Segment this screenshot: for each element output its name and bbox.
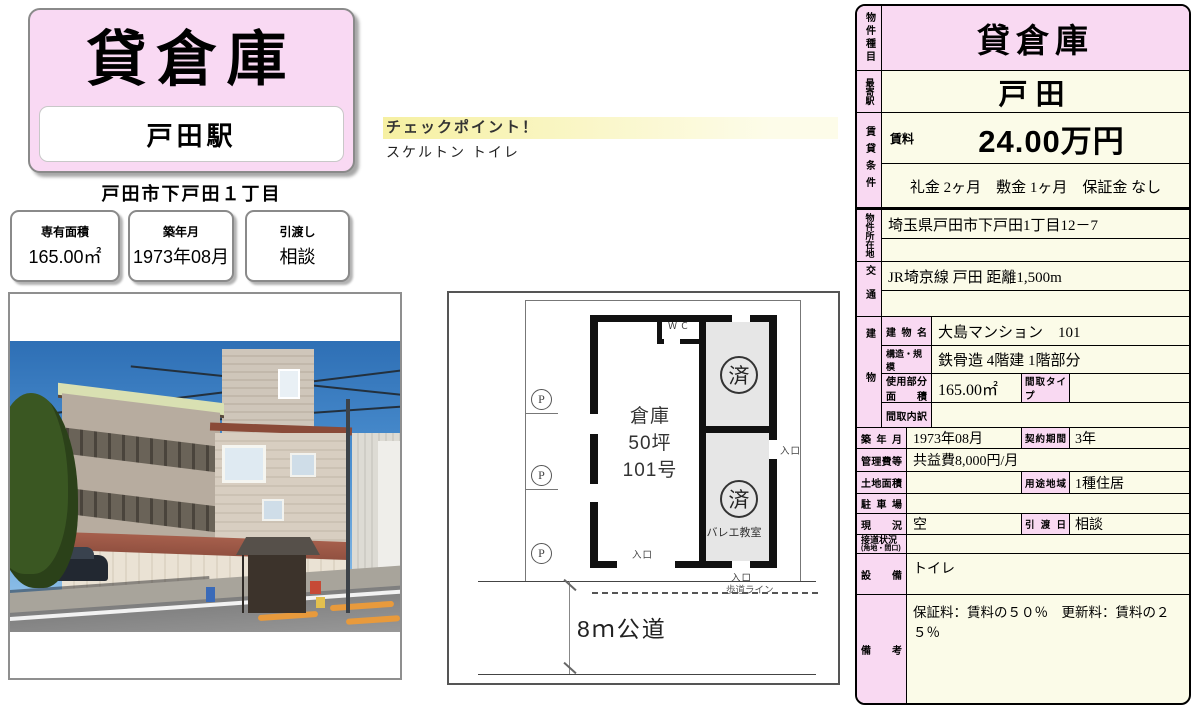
label-text: 築年月: [861, 431, 902, 446]
row-location: 物件所在地 埼玉県戸田市下戸田1丁目12－7: [857, 207, 1189, 261]
parking-symbol: P: [531, 389, 552, 410]
sidewalk-dashed-line: [592, 592, 818, 594]
road-access-value: [907, 535, 1189, 553]
boundary-line: [525, 300, 526, 581]
row-label: 建物: [857, 328, 882, 416]
built-label: 築年月: [857, 428, 907, 448]
warehouse-room-label: 倉庫 50坪 101号: [597, 403, 703, 484]
label-text: 面積: [886, 388, 927, 403]
measure-tick: [563, 662, 576, 674]
row-label-cell: 賃貸条件: [857, 113, 882, 207]
row-label: 最寄駅: [857, 78, 882, 105]
room-line: 101号: [597, 457, 703, 484]
page-title: 貸倉庫: [30, 12, 353, 108]
label-text: 構造・規模: [886, 347, 927, 373]
land-value: [907, 472, 1021, 493]
small-sign: [206, 587, 215, 602]
info-box-handover: 引渡し 相談: [245, 210, 350, 282]
checkpoint-title: チェックポイント！: [383, 117, 838, 139]
wall-opening: [732, 315, 750, 322]
row-label: 交通: [857, 265, 882, 313]
remarks-value: 保証料：賃料の５０％ 更新料：賃料の２５％: [907, 595, 1189, 703]
row-transport: 交通 JR埼京線 戸田 距離1,500m: [857, 261, 1189, 316]
label-text: 間取内訳: [886, 408, 927, 423]
row-label: 物件種目: [857, 12, 882, 64]
info-label: 専有面積: [41, 223, 89, 240]
building-area-row: 使用部分 面積 165.00㎡ 間取タイプ: [882, 373, 1189, 402]
building-structure-label: 構造・規模: [882, 346, 932, 373]
info-box-area: 専有面積 165.00㎡: [10, 210, 120, 282]
transport-value2: [882, 291, 1189, 317]
entrance-label: 入口: [780, 443, 801, 457]
parking-symbol: P: [531, 465, 552, 486]
entrance-canopy: [236, 537, 320, 555]
row-label: 物件所在地: [857, 213, 882, 258]
entrance-opening: [617, 561, 675, 568]
road-measure-line: [569, 581, 570, 674]
entrance-opening: [769, 440, 777, 459]
row-management-fee: 管理費等 共益費8,000円/月: [857, 448, 1189, 471]
built-value: 1973年08月: [907, 428, 1021, 448]
label-text: 現況: [861, 517, 902, 532]
fees-value: 共益費8,000円/月: [907, 449, 1189, 471]
building-structure-value: 鉄骨造 4階建 1階部分: [932, 346, 1189, 373]
row-nearest-station: 最寄駅 戸田: [857, 70, 1189, 112]
label-text: 駐車場: [861, 496, 902, 511]
layout-type-value: [1070, 374, 1189, 402]
room-line: 倉庫: [597, 403, 703, 430]
window: [262, 499, 284, 521]
transport-line2: [882, 290, 1189, 317]
remarks-label: 備考: [857, 595, 907, 703]
building-layout-row: 間取内訳: [882, 402, 1189, 428]
handover-label: 引渡日: [1021, 514, 1070, 534]
label-text: 用途地域: [1025, 476, 1066, 490]
station-name: 戸田駅: [39, 106, 344, 162]
equipment-label: 設備: [857, 554, 907, 594]
row-label-cell: 物件所在地: [857, 210, 882, 261]
room-line: 50坪: [597, 430, 703, 457]
row-rent-conditions: 賃貸条件 賃料 24.00万円 礼金 2ヶ月 敷金 1ヶ月 保証金 なし: [857, 112, 1189, 207]
boundary-line: [800, 300, 801, 581]
equipment-value: トイレ: [907, 554, 1189, 594]
info-label: 築年月: [163, 223, 199, 240]
photo-frame: [8, 292, 402, 680]
parking-divider: [525, 489, 558, 490]
sidewalk-line-label: 歩道ライン: [726, 582, 774, 596]
boundary-line: [525, 300, 800, 301]
label-text: 接道状況: [861, 536, 902, 545]
label-text: 土地面積: [861, 475, 902, 490]
building-name-row: 建物名 大島マンション 101: [882, 317, 1189, 345]
row-land-area: 土地面積 用途地域 1種住居: [857, 471, 1189, 493]
entrance-label: 入口: [632, 547, 653, 561]
handover-value: 相談: [1070, 514, 1189, 534]
building-area-label: 使用部分 面積: [882, 374, 932, 402]
row-current-status: 現況 空 引渡日 相談: [857, 513, 1189, 534]
wall-middle-horizontal: [706, 426, 769, 433]
building-name-value: 大島マンション 101: [932, 317, 1189, 345]
station-value: 戸田: [882, 71, 1189, 112]
row-equipment: 設備 トイレ: [857, 553, 1189, 594]
window-opening: [590, 484, 598, 502]
location-value: 埼玉県戸田市下戸田1丁目12－7: [882, 210, 1189, 238]
address-line: 戸田市下戸田１丁目: [28, 180, 355, 206]
contract-label: 契約期間: [1021, 428, 1070, 448]
deposit-terms: 礼金 2ヶ月 敷金 1ヶ月 保証金 なし: [882, 164, 1189, 208]
rent-row: 賃料 24.00万円: [882, 113, 1189, 163]
neighbor-building-face: [378, 441, 400, 571]
occupied-stamp: 済: [720, 356, 758, 394]
bay-window: [222, 445, 266, 483]
entrance-opening: [732, 561, 750, 568]
status-label: 現況: [857, 514, 907, 534]
building-structure-row: 構造・規模 鉄骨造 4階建 1階部分: [882, 345, 1189, 373]
label-text: 引渡日: [1025, 517, 1066, 531]
row-built-date: 築年月 1973年08月 契約期間 3年: [857, 427, 1189, 448]
property-sheet: 貸倉庫 戸田駅 戸田市下戸田１丁目 専有面積 165.00㎡ 築年月 1973年…: [0, 0, 1200, 713]
row-building: 建物 建物名 大島マンション 101 構造・規模 鉄骨造 4階建 1階部分: [857, 316, 1189, 427]
status-value: 空: [907, 514, 1021, 534]
canopy-post: [242, 555, 244, 613]
building-layout-value: [932, 403, 1189, 428]
property-detail-table: 物件種目 貸倉庫 最寄駅 戸田 賃貸条件 賃料 24.00万円 礼金 2ヶ月 敷…: [855, 4, 1191, 705]
building-photo: [10, 341, 400, 632]
label-text: 備考: [861, 642, 902, 657]
row-parking: 駐車場: [857, 493, 1189, 513]
transport-value: JR埼京線 戸田 距離1,500m: [882, 262, 1189, 290]
tower-window: [278, 369, 300, 399]
small-sign: [310, 581, 321, 594]
building-area-value: 165.00㎡: [932, 374, 1021, 402]
rent-label: 賃料: [890, 130, 914, 147]
info-value: 1973年08月: [133, 243, 229, 269]
label-text: 建物名: [886, 324, 927, 339]
window: [290, 453, 316, 477]
row-label-cell: 最寄駅: [857, 71, 882, 112]
label-text: 管理費等: [861, 453, 902, 468]
parking-value: [907, 494, 1189, 513]
deposit-row: 礼金 2ヶ月 敷金 1ヶ月 保証金 なし: [882, 163, 1189, 208]
zoning-value: 1種住居: [1070, 472, 1189, 493]
occupied-stamp: 済: [720, 480, 758, 518]
utility-pole: [346, 399, 350, 613]
row-label-cell: 物件種目: [857, 6, 882, 70]
building-layout-label: 間取内訳: [882, 403, 932, 428]
zoning-label: 用途地域: [1021, 472, 1070, 493]
label-text: 使用部分: [886, 373, 927, 388]
info-box-built: 築年月 1973年08月: [128, 210, 234, 282]
entrance-label: 入口: [731, 570, 752, 584]
label-text: 間取タイプ: [1025, 374, 1066, 402]
parking-label: 駐車場: [857, 494, 907, 513]
rent-value: 24.00万円: [914, 116, 1189, 161]
wc-label: ＷＣ: [662, 319, 698, 332]
checkpoint-note: スケルトン トイレ: [386, 142, 520, 162]
ballet-room-label: バレエ教室: [697, 524, 771, 540]
layout-type-label: 間取タイプ: [1021, 374, 1070, 402]
floor-plan: 歩道ライン 8ｍ公道 ＷＣ 倉庫 50坪 101号 済 済 バレエ教室 入口 入…: [447, 291, 840, 685]
row-label-cell: 建物: [857, 317, 882, 427]
parking-symbol: P: [531, 543, 552, 564]
info-value: 165.00㎡: [28, 243, 101, 269]
row-label: 賃貸条件: [857, 126, 882, 194]
entrance-door: [248, 549, 306, 613]
label-subtext: (角地・間口): [861, 545, 902, 553]
row-remarks: 備考 保証料：賃料の５０％ 更新料：賃料の２５％: [857, 594, 1189, 703]
info-value: 相談: [280, 243, 316, 269]
contract-value: 3年: [1070, 428, 1189, 448]
wc-door-opening: [664, 339, 680, 344]
building-name-label: 建物名: [882, 317, 932, 345]
label-text: 契約期間: [1025, 431, 1066, 445]
road-access-label: 接道状況 (角地・間口): [857, 535, 907, 553]
small-sign: [316, 597, 325, 608]
transport-line1: JR埼京線 戸田 距離1,500m: [882, 262, 1189, 290]
row-label-cell: 交通: [857, 262, 882, 316]
parking-divider: [525, 413, 558, 414]
info-label: 引渡し: [279, 223, 315, 240]
title-box: 貸倉庫 戸田駅: [28, 8, 355, 173]
road-width-label: 8ｍ公道: [577, 610, 667, 644]
fees-label: 管理費等: [857, 449, 907, 471]
location-line1: 埼玉県戸田市下戸田1丁目12－7: [882, 210, 1189, 238]
row-property-type: 物件種目 貸倉庫: [857, 6, 1189, 70]
land-label: 土地面積: [857, 472, 907, 493]
road-edge-line: [478, 674, 816, 675]
property-type-value: 貸倉庫: [882, 6, 1189, 70]
row-road-access: 接道状況 (角地・間口): [857, 534, 1189, 553]
label-text: 設備: [861, 567, 902, 582]
